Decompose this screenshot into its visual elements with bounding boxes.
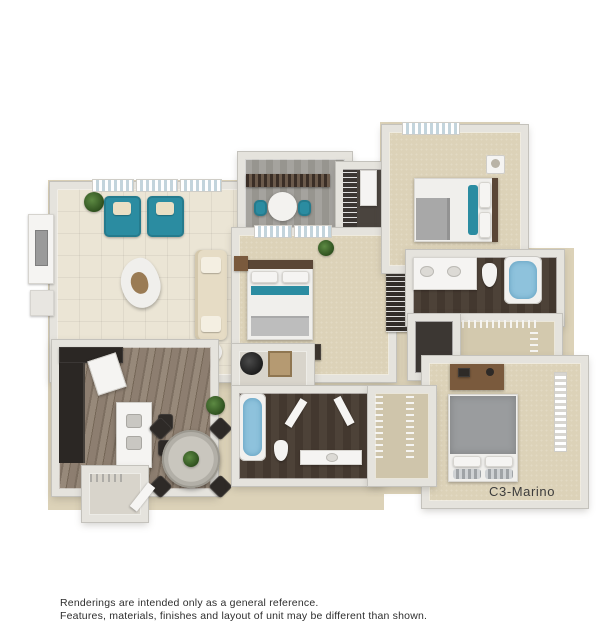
disclaimer-line-2: Features, materials, finishes and layout…: [60, 610, 540, 623]
closet-shelving: [343, 170, 357, 228]
master-gray-blanket: [251, 316, 309, 336]
disclaimer: Renderings are intended only as a genera…: [60, 597, 540, 623]
plant-icon: [318, 240, 334, 256]
armchair-pillow: [156, 202, 174, 215]
master-pillow: [282, 271, 309, 283]
sink-icon: [420, 266, 434, 277]
desk-items-icon: [458, 368, 470, 377]
tv-screen-icon: [35, 230, 48, 266]
wire-shelving-icon: [530, 328, 538, 358]
sofa-pillow: [201, 257, 221, 273]
plant-icon: [84, 192, 104, 212]
utility-cabinet: [268, 351, 292, 377]
master-headboard: [247, 260, 313, 269]
bedroom3-striped-pillow: [453, 469, 481, 479]
master-teal-runner: [251, 286, 309, 295]
bathtub-water: [243, 398, 262, 456]
wire-shelving-icon: [90, 474, 126, 482]
bedroom2-headboard: [492, 178, 498, 242]
bedroom2-pillow: [479, 212, 491, 238]
water-heater-icon: [240, 352, 263, 375]
master-window-icon: [294, 225, 332, 238]
bistro-chair: [298, 200, 311, 216]
bathtub-water: [509, 261, 537, 299]
living-room-window-icon: [92, 179, 134, 192]
media-shelf: [30, 290, 54, 316]
floorplan-page: C3-Marino Renderings are intended only a…: [0, 0, 604, 639]
master-window-icon: [254, 225, 292, 238]
plant-icon: [206, 396, 225, 415]
washer-icon: [360, 170, 377, 206]
bedroom3-gray-duvet: [450, 396, 516, 454]
bedroom3-pillow: [485, 456, 513, 467]
sofa-pillow: [201, 316, 221, 332]
wire-shelving-icon: [375, 394, 383, 458]
wire-shelving-icon: [406, 394, 414, 458]
living-room-window-icon: [180, 179, 222, 192]
table-centerpiece-icon: [183, 451, 199, 467]
kitchen-island: [116, 402, 152, 468]
bedroom3-striped-pillow: [485, 469, 513, 479]
bedroom2-pillow: [479, 182, 491, 208]
bedroom3-window-icon: [554, 372, 567, 452]
wire-shelving-icon: [456, 320, 538, 328]
island-sink-icon: [126, 436, 142, 450]
bedroom3-pillow: [453, 456, 481, 467]
disclaimer-line-1: Renderings are intended only as a genera…: [60, 597, 540, 610]
bedroom2-teal-pillows: [468, 185, 478, 235]
island-sink-icon: [126, 414, 142, 428]
master-pillow: [251, 271, 278, 283]
armchair-pillow: [113, 202, 131, 215]
sink-icon: [447, 266, 461, 277]
lamp-icon: [491, 159, 500, 168]
bedroom2-window-icon: [402, 122, 460, 135]
nightstand-lamp-icon: [234, 256, 248, 271]
kitchen-cabinets: [59, 363, 85, 463]
plan-name-label: C3-Marino: [489, 484, 555, 499]
living-room-window-icon: [136, 179, 178, 192]
balcony-railing: [246, 174, 330, 187]
bedroom2-gray-throw: [416, 198, 450, 240]
bistro-chair: [254, 200, 267, 216]
bistro-table: [268, 192, 297, 221]
sink-icon: [326, 453, 338, 462]
desk-lamp-icon: [486, 368, 494, 376]
